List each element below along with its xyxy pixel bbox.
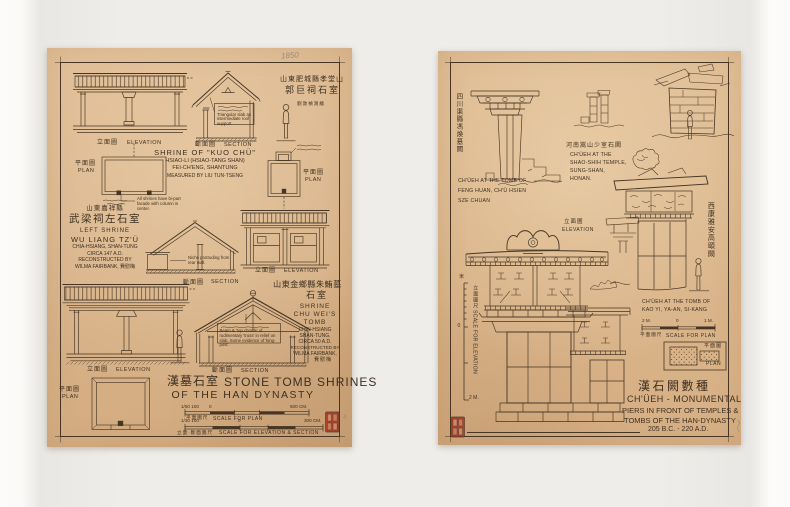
kao-yi-elevation-label-cn: 立面圖 — [564, 220, 584, 226]
wu-liang-title-1: LEFT SHRINE — [80, 228, 130, 234]
wl-elevation-label: ELEVATION — [284, 269, 319, 275]
elev-scale-label: SCALE FOR ELEVATION — [471, 310, 476, 374]
scale-plan-ratio: 1/50 100 — [181, 405, 199, 410]
feng-huan-caption-2: FENG HUAN, CH'Ü HSIEN — [458, 189, 526, 194]
shao-shih-caption-2: SHAO-SHIH TEMPLE, — [570, 161, 627, 166]
wu-liang-title-2: WU LIANG TZ'Ü — [71, 236, 139, 244]
plan-scale-label: SCALE FOR PLAN — [666, 334, 716, 339]
kao-yi-caption-2: KAO YI, YA-AN, SI-KANG — [642, 308, 707, 313]
right-title-en-3: TOMBS OF THE HAN-DYNASTY — [624, 417, 736, 425]
scale-elev-max: 300 CM. — [304, 419, 321, 424]
elev-scale-top: 米 — [459, 275, 465, 280]
plan-scale-left: 2 M. — [642, 319, 651, 324]
kuo-chu-cn-location: 山東肥城縣孝堂山 — [280, 76, 344, 83]
elev-scale-label-cn: 立面圖尺 — [472, 285, 477, 309]
truss-note: Beam & 'top chords' of rudimentary 'trus… — [220, 329, 280, 348]
scale-elev-zero: 0 — [238, 419, 241, 424]
wu-liang-cn-name: 武梁祠左石室 — [69, 214, 141, 225]
wl-section-label-cn: 斷面圖 — [183, 280, 204, 286]
wu-liang-date: CIRCA 147 A.D. — [87, 252, 123, 257]
cw-section-label: SECTION — [241, 369, 269, 375]
chu-wei-title-3: TOMB — [304, 320, 327, 327]
right-title-en-1: CH'ÜEH - MONUMENTAL — [627, 395, 742, 404]
feng-huan-caption-3: SZE CHUAN — [458, 199, 490, 204]
plan3-label-cn: 平面圖 — [59, 387, 80, 393]
kuo-chu-title: SHRINE OF "KUO CHÜ" — [154, 149, 256, 157]
chu-wei-credit-3: 費慰梅 — [314, 358, 332, 363]
pencil-mark — [738, 420, 740, 432]
left-title-en-2: OF THE HAN DYNASTY — [172, 390, 315, 401]
right-title-en-2: PIERS IN FRONT OF TEMPLES & — [622, 407, 738, 415]
shao-shih-cn: 河南嵩山少室石闕 — [566, 143, 622, 149]
plan1-label-cn: 平面圖 — [75, 161, 96, 167]
elevation-label: ELEVATION — [127, 141, 162, 147]
scale-plan-max: 500 CM. — [290, 405, 307, 410]
right-title-en-4: 205 B.C. - 220 A.D. — [648, 426, 708, 433]
chu-wei-title-2: CHU WEI'S — [294, 312, 337, 319]
plan-label-cn: 平面圖 — [704, 344, 722, 349]
shao-shih-caption-4: HONAN. — [570, 177, 592, 182]
plan3-label: PLAN — [62, 395, 78, 401]
shao-shih-caption-1: CH'ÜEH AT THE — [570, 153, 612, 158]
wu-liang-cn-location: 山東嘉祥縣 — [86, 206, 124, 213]
kao-yi-caption-1: CH'ÜEH AT THE TOMB OF — [642, 300, 711, 305]
plan-scale-zero: 0 — [676, 319, 679, 324]
scale-elev-ratio: 1/30 100 — [181, 419, 199, 424]
kuo-chu-credit: MEASURED BY LIU TUN-TSENG — [167, 174, 243, 179]
plan-label: PLAN — [706, 362, 721, 367]
chu-wei-title-1: SHRINE — [300, 304, 331, 311]
plan-scale-right: 1 M. — [704, 319, 713, 324]
elevation-label-cn: 立面圖 — [97, 140, 118, 146]
red-seal-stamp-left — [326, 412, 340, 432]
plan2-label-cn: 平面圖 — [303, 170, 324, 176]
scale-elev-label-cn: 立面·斷面圖尺 — [177, 431, 213, 436]
feng-huan-caption-1: CH'ÜEH AT THE TOMB OF — [458, 179, 527, 184]
shao-shih-caption-3: SUNG-SHAN, — [570, 169, 605, 174]
feng-huan-cn-vertical: 四川渠縣馮煥墓闕 — [454, 93, 461, 153]
chu-wei-cn-name: 石室 — [306, 291, 328, 300]
kuo-chu-cn-name: 郭巨祠石室 — [285, 86, 340, 95]
chu-wei-cn-location: 山東金鄉縣朱鮪墓 — [273, 281, 342, 290]
niche-note: Niche protruding from rear wall. — [188, 256, 230, 266]
scale-elev-label: SCALE FOR ELEVATION & SECTION — [219, 431, 319, 436]
plan-scale-label-cn: 平面圖尺 — [640, 333, 662, 338]
plan1-label: PLAN — [78, 169, 94, 175]
kuo-chu-subtitle-1: HSIAO-LI (HSIAO-TANG SHAN) — [165, 159, 244, 165]
left-title-cn: 漢墓石室 — [167, 375, 219, 388]
plan2-label: PLAN — [305, 178, 321, 184]
scale-plan-zero: 0 — [209, 405, 212, 410]
elev-scale-bottom: 2 M. — [469, 396, 479, 401]
pencil-number: 4 — [343, 415, 346, 421]
wu-liang-credit-2: WILMA FAIRBANK, 費慰梅 — [75, 265, 135, 270]
kuo-chu-cn-credit: 劉敦楨測繪 — [297, 102, 325, 107]
kao-yi-cn-vertical: 西康雅安高頤闕 — [707, 202, 714, 258]
left-sheet: 1850 山東肥城縣孝堂山 郭巨祠石室 劉敦楨測繪 立面圖 ELEVATION … — [47, 48, 352, 447]
wl-section-label: SECTION — [211, 280, 239, 286]
cw-elevation-label: ELEVATION — [116, 368, 151, 374]
right-title-cn: 漢石闕數種 — [638, 380, 711, 393]
kuo-chu-subtitle-2: FEI-CH'ENG, SHANTUNG — [172, 166, 237, 172]
right-sheet: 四川渠縣馮煥墓闕 CH'ÜEH AT THE TOMB OF FENG HUAN… — [438, 51, 741, 445]
wl-elevation-label-cn: 立面圖 — [255, 268, 276, 274]
left-title-en-1: STONE TOMB SHRINES — [224, 376, 377, 389]
roof-note: Triangular slab as intermediate roof sup… — [217, 113, 253, 127]
kao-yi-elevation-label: ELEVATION — [562, 228, 594, 233]
facade-note: All shrines have bi-part facade with col… — [137, 197, 187, 211]
pencil-year: 1850 — [281, 51, 299, 61]
elev-scale-zero: 0 — [458, 324, 461, 329]
cw-elevation-label-cn: 立面圖 — [87, 367, 108, 373]
wu-liang-credit-1: RECONSTRUCTED BY — [78, 258, 131, 263]
wu-liang-subtitle: CHIA-HSIANG, SHAN-TUNG — [72, 245, 137, 250]
red-seal-stamp-right — [451, 417, 465, 437]
